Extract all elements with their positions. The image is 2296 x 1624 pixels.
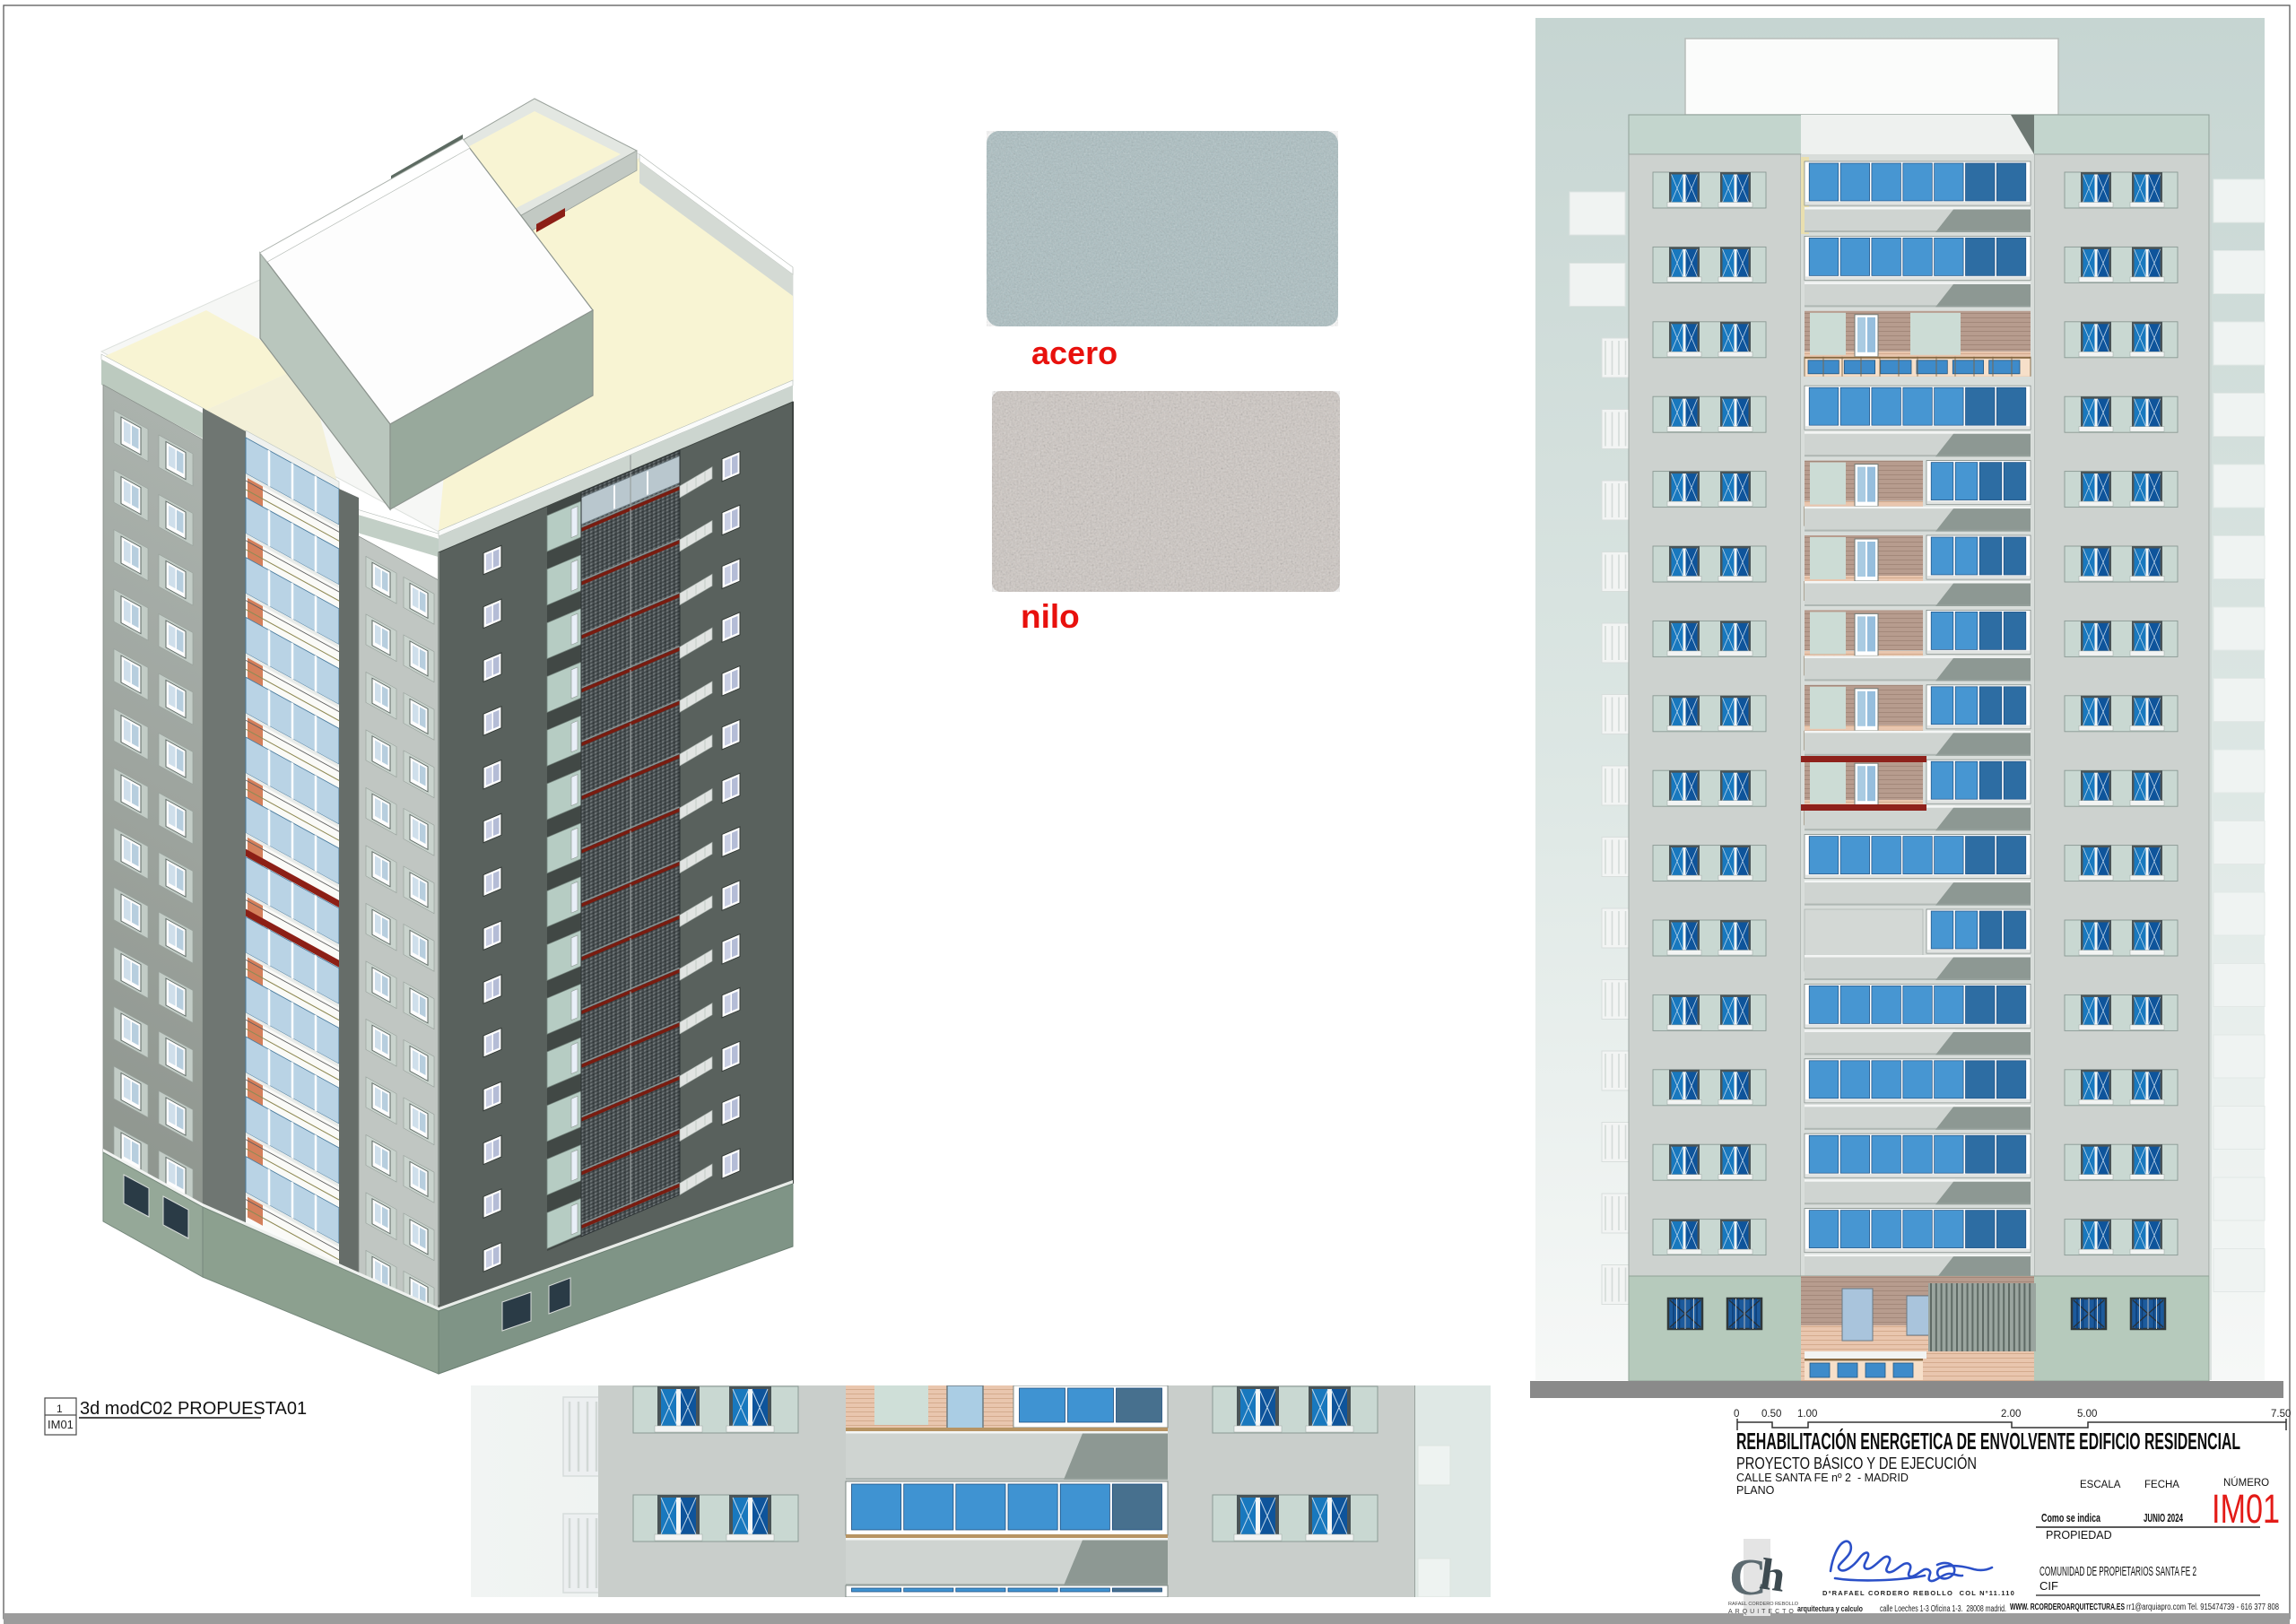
svg-text:ARQUITECTO: ARQUITECTO (1728, 1609, 1796, 1615)
svg-text:0: 0 (1734, 1409, 1739, 1420)
svg-text:IM01: IM01 (48, 1418, 74, 1431)
svg-text:rr1@arquiapro.com Tel. 9154747: rr1@arquiapro.com Tel. 915474739 - 616 3… (2126, 1602, 2279, 1612)
svg-text:3d modC02 PROPUESTA01: 3d modC02 PROPUESTA01 (80, 1399, 307, 1419)
svg-text:REHABILITACIÓN ENERGETICA DE E: REHABILITACIÓN ENERGETICA DE ENVOLVENTE … (1736, 1428, 2240, 1455)
svg-text:0.50: 0.50 (1761, 1409, 1781, 1420)
svg-text:5.00: 5.00 (2077, 1409, 2097, 1420)
svg-text:arquitectura y calculo: arquitectura y calculo (1797, 1604, 1863, 1614)
svg-text:PROPIEDAD: PROPIEDAD (2046, 1529, 2112, 1541)
svg-text:DªRAFAEL CORDERO REBOLLO COL: DªRAFAEL CORDERO REBOLLO COL Nº11.110 (1822, 1589, 2015, 1597)
svg-text:PLANO: PLANO (1736, 1484, 1775, 1497)
svg-text:acero: acero (1031, 334, 1118, 371)
svg-text:WWW. RCORDEROARQUITECTURA.ES: WWW. RCORDEROARQUITECTURA.ES (2010, 1602, 2125, 1612)
svg-text:CALLE SANTA FE nº 2 - MADRID: CALLE SANTA FE nº 2 - MADRID (1736, 1472, 1909, 1484)
svg-text:RAFAEL CORDERO REBOLLO: RAFAEL CORDERO REBOLLO (1728, 1602, 1799, 1607)
svg-text:calle Loeches 1-3 Oficina 1-3.: calle Loeches 1-3 Oficina 1-3. 28008 mad… (1880, 1604, 2006, 1614)
svg-text:nilo: nilo (1021, 598, 1080, 635)
svg-text:1: 1 (57, 1403, 63, 1415)
svg-text:CIF: CIF (2039, 1579, 2058, 1593)
svg-text:COMUNIDAD DE PROPIETARIOS SANT: COMUNIDAD DE PROPIETARIOS SANTA FE 2 (2039, 1564, 2196, 1579)
svg-text:IM01: IM01 (2212, 1486, 2280, 1532)
svg-text:PROYECTO BÁSICO Y DE EJECUCIÓN: PROYECTO BÁSICO Y DE EJECUCIÓN (1736, 1454, 1977, 1472)
svg-text:FECHA: FECHA (2144, 1480, 2179, 1490)
svg-text:JUNIO 2024: JUNIO 2024 (2144, 1511, 2183, 1524)
svg-text:2.00: 2.00 (2001, 1409, 2021, 1420)
svg-text:Como se indica: Como se indica (2041, 1511, 2101, 1524)
svg-text:1.00: 1.00 (1797, 1409, 1817, 1420)
svg-text:7.50: 7.50 (2271, 1409, 2291, 1420)
svg-text:ESCALA: ESCALA (2080, 1480, 2121, 1490)
